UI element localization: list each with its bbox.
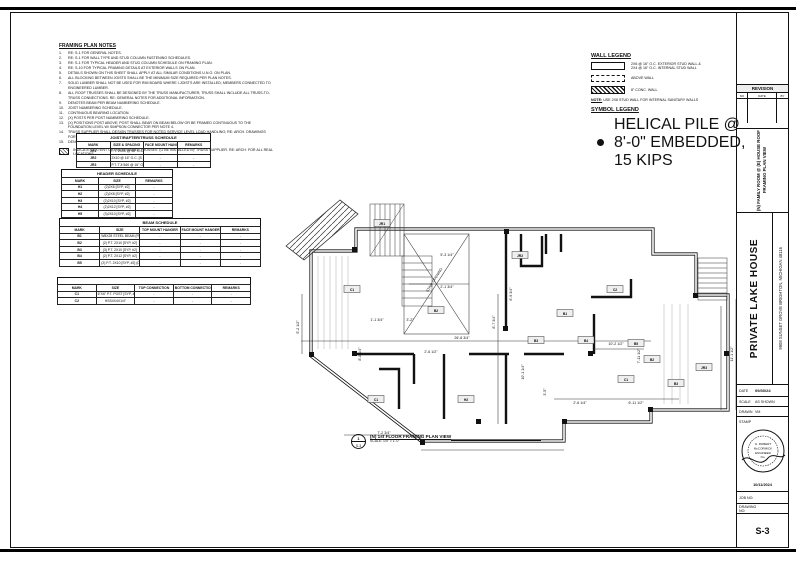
notes-title: FRAMING PLAN NOTES xyxy=(59,43,274,49)
cell: 6"X6" P.T. POST [SYP, #2] xyxy=(96,291,135,298)
job-no-row: JOB NO: xyxy=(737,492,788,504)
drawing-no-label: DRAWING NO: xyxy=(739,505,755,513)
seal-date: 10/11/2024 xyxy=(737,483,788,487)
revision-column-header: DATE xyxy=(748,93,777,98)
column-header: FACE MOUNT HANGER xyxy=(180,227,220,234)
note-number: 11. xyxy=(59,111,68,115)
cell: (3)2X10 [SYP, #2] xyxy=(99,210,136,217)
member-marker: B1 xyxy=(557,310,573,317)
note-number: 7. xyxy=(59,81,68,90)
note-number: 2. xyxy=(59,56,68,60)
dimension-label: 2'-6 1/2" xyxy=(424,350,438,354)
svg-text:C1: C1 xyxy=(374,398,378,402)
note-item: 3.RE: S-1 FOR TYPICAL HEADER AND STUD CO… xyxy=(59,61,274,65)
cell: P.T. 2X10 @ 16" O.C. [SYP, #2] xyxy=(110,148,144,155)
member-marker: B3 xyxy=(528,337,544,344)
column-header: TOP MOUNT HANGER xyxy=(140,227,180,234)
cell: - xyxy=(212,291,251,298)
hatch-swatch-icon xyxy=(59,148,69,155)
note-item: 7.SOLID LUMBER SHALL NOT BE USED FOR RIM… xyxy=(59,81,274,90)
note-text: (X) POSITIONS POST ABOVE; POST SHALL BEA… xyxy=(68,121,274,130)
cell: JR2 xyxy=(77,155,111,162)
note-number: 3. xyxy=(59,61,68,65)
table-row: H1(2)2X6 [SYP, #2]- xyxy=(62,184,173,191)
note-text: DETAILS SHOWN ON THIS SHEET SHALL APPLY … xyxy=(68,71,231,75)
sheet-border: FRAMING PLAN NOTES 1.RE: S-1 FOR GENERAL… xyxy=(10,12,789,548)
note-item: 12.(X) POSTS PER POST NUMBERING SCHEDULE… xyxy=(59,116,274,120)
revision-title: REVISION xyxy=(737,85,788,93)
note-item: 4.RE: S-10 FOR TYPICAL FRAMING DETAILS A… xyxy=(59,66,274,70)
wall-legend-label: 8" CONC. WALL xyxy=(631,88,658,92)
cell: - xyxy=(140,240,180,247)
cell: - xyxy=(220,246,260,253)
cell: H1 xyxy=(62,184,99,191)
member-marker: B4 xyxy=(578,337,594,344)
scale-value: AS SHOWN xyxy=(755,400,775,404)
table-row: B3(3) P.T. 2X10 [SYP, #2]--- xyxy=(60,246,261,253)
dimension-label: 6'-11 1/2" xyxy=(629,401,645,405)
column-schedule-title xyxy=(57,277,251,284)
note-text: RE: S-10 FOR TYPICAL FRAMING DETAILS AT … xyxy=(68,66,195,70)
note-item: 9.DENOTES BEAM PER BEAM NUMBERING SCHEDU… xyxy=(59,101,274,105)
wall-legend-item: 2X6 @ 16" O.C. EXTERIOR STUD WALL & 2X4 … xyxy=(591,62,751,71)
note-item: 11.CONTINUOUS BEARING LOCATION. xyxy=(59,111,274,115)
joist-schedule-title: JOIST/RAFTER/TRUSS SCHEDULE xyxy=(76,133,211,141)
cell: H5 xyxy=(62,210,99,217)
beam-schedule-title: BEAM SCHEDULE xyxy=(59,218,261,226)
dimension-lines xyxy=(301,284,736,450)
member-marker: C1 xyxy=(618,376,634,383)
note-number: 12. xyxy=(59,116,68,120)
cell: - xyxy=(140,246,180,253)
dimension-label: 26'-8 3/4" xyxy=(454,336,470,340)
date-row: DATE 09/30/24 xyxy=(737,385,788,397)
plan-caption: 1 S-3 (N) 1st FLOOR FRAMING PLAN VIEW SC… xyxy=(351,434,541,449)
member-marker: JR1 xyxy=(374,220,390,227)
note-text: DENOTES BEAM PER BEAM NUMBERING SCHEDULE… xyxy=(68,101,161,105)
svg-text:B5: B5 xyxy=(634,342,638,346)
cell: (2)2X12 [SYP, #2] xyxy=(99,204,136,211)
dimension-label: 3'-5" xyxy=(543,388,547,396)
note-number: 1. xyxy=(59,51,68,55)
seal-text-line: G. ROBERT xyxy=(754,442,771,446)
date-value: 09/30/24 xyxy=(755,388,771,393)
note-item: 2.RE: S-1 FOR WALL TYPE AND STUD COLUMN … xyxy=(59,56,274,60)
drawn-label: DRAWN xyxy=(739,410,755,414)
note-text: RE: S-1 FOR WALL TYPE AND STUD COLUMN FA… xyxy=(68,56,191,60)
caption-text: (N) 1st FLOOR FRAMING PLAN VIEW SCALE: 1… xyxy=(370,434,451,443)
column-header: MARK xyxy=(60,227,100,234)
svg-text:JR2: JR2 xyxy=(517,254,523,258)
header-schedule-title: HEADER SCHEDULE xyxy=(61,169,173,177)
joist-schedule-table: MARKSIZE & SPACINGFACE MOUNT HANGERREMAR… xyxy=(76,141,211,168)
cell: - xyxy=(180,240,220,247)
revision-column-header: BY xyxy=(777,93,788,98)
column-header: REMARKS xyxy=(177,142,211,149)
dimension-label: 6'-9 3/4" xyxy=(509,287,513,301)
table-row: C16"X6" P.T. POST [SYP, #2]--- xyxy=(58,291,251,298)
cell: B3 xyxy=(60,246,100,253)
cell: (2)2X8 [SYP, #2] xyxy=(99,191,136,198)
symbol-legend-item: HELICAL PILE @ 8'-0" EMBEDDED, 15 KIPS xyxy=(591,116,751,170)
cell: - xyxy=(144,155,178,162)
column-schedule: MARKSIZETOP CONNECTIONBOTTOM CONNECTIONR… xyxy=(57,277,251,305)
revision-rows xyxy=(737,99,788,123)
note-text: CONTINUOUS BEARING LOCATION. xyxy=(68,111,129,115)
table-row: H3(2)2X10 [SYP, #2]- xyxy=(62,197,173,204)
member-marker: JR2 xyxy=(512,252,528,259)
cell: - xyxy=(173,298,212,305)
table-row: B1W8X28 STEEL BEAM (FLUSH)--- xyxy=(60,233,261,240)
wall-legend-label: 2X6 @ 16" O.C. EXTERIOR STUD WALL & 2X4 … xyxy=(631,62,701,71)
floor-framing-plan: STAIR OPENING xyxy=(284,194,744,454)
note-number: 14. xyxy=(59,130,68,139)
column-header: REMARKS xyxy=(212,285,251,292)
cell: H2 xyxy=(62,191,99,198)
table-row: H2(2)2X8 [SYP, #2]- xyxy=(62,191,173,198)
wall-legend-item: 8" CONC. WALL xyxy=(591,86,751,94)
bubble-number: 1 xyxy=(352,436,365,441)
cell: (2)2X10 [SYP, #2] xyxy=(99,197,136,204)
project-address: 9908 SUNSET GROVE BRIGHTON, MICHIGAN 481… xyxy=(778,247,783,350)
cell: JR1 xyxy=(77,148,111,155)
cell: - xyxy=(140,259,180,266)
svg-text:C2: C2 xyxy=(613,288,617,292)
table-row: B2(2) P.T. 2X10 [SYP, #2]--- xyxy=(60,240,261,247)
cell: - xyxy=(180,253,220,260)
note-text: JOIST NUMBERING SCHEDULE. xyxy=(68,106,123,110)
title-block-blank xyxy=(737,13,788,85)
cell: - xyxy=(180,233,220,240)
svg-text:B4: B4 xyxy=(584,339,588,343)
engineer-seal: G. ROBERTMcCORMICKENGINEERNo. 10/11/2024 xyxy=(737,426,788,492)
cell: - xyxy=(173,291,212,298)
cell: JR3 xyxy=(77,161,111,168)
column-header: SIZE & SPACING xyxy=(110,142,144,149)
dimension-label: 11'-1 1/2" xyxy=(730,346,734,362)
scale-label: SCALE xyxy=(739,400,755,404)
note-number: 15. xyxy=(59,140,68,144)
cell: - xyxy=(135,298,174,305)
filled-circle-icon xyxy=(597,139,604,146)
cell: - xyxy=(220,233,260,240)
symbol-legend-label: HELICAL PILE @ 8'-0" EMBEDDED, 15 KIPS xyxy=(614,116,751,170)
svg-text:C1: C1 xyxy=(350,288,354,292)
post-markers xyxy=(309,229,729,445)
cell: - xyxy=(177,161,211,168)
seal-text-line: No. xyxy=(760,455,765,459)
cell: B4 xyxy=(60,253,100,260)
dashed-wall-swatch-icon xyxy=(591,75,625,82)
cell: - xyxy=(136,191,173,198)
table-row: H4(2)2X12 [SYP, #2]- xyxy=(62,204,173,211)
wall-legend-title: WALL LEGEND xyxy=(591,53,751,59)
job-no-label: JOB NO: xyxy=(739,496,755,500)
note-text: (X) POSTS PER POST NUMBERING SCHEDULE. xyxy=(68,116,150,120)
beam-schedule-table: MARKSIZETOP MOUNT HANGERFACE MOUNT HANGE… xyxy=(59,226,261,267)
column-header: MARK xyxy=(62,178,99,185)
note-text: RE: S-1 FOR GENERAL NOTES. xyxy=(68,51,122,55)
cell: (3) P.T. 2X10 [SYP, #2] xyxy=(100,246,140,253)
cell: - xyxy=(136,184,173,191)
dimension-label: 1'-1 3/4" xyxy=(370,318,384,322)
dimension-label: 8'-7 3/4" xyxy=(492,315,496,329)
cell: - xyxy=(140,253,180,260)
scale-row: SCALE AS SHOWN xyxy=(737,397,788,407)
seal-text-line: ENGINEER xyxy=(755,451,772,455)
note-item: 8.ALL ROOF TRUSSES SHALL BE DESIGNED BY … xyxy=(59,91,274,100)
cell: - xyxy=(180,259,220,266)
note-number: 9. xyxy=(59,101,68,105)
wall-legend-note: NOTE: USE 2X6 STUD WALL FOR INTERNAL SAN… xyxy=(591,98,751,102)
symbol-legend-items: HELICAL PILE @ 8'-0" EMBEDDED, 15 KIPS xyxy=(591,116,751,170)
cell: - xyxy=(177,155,211,162)
column-header: FACE MOUNT HANGER xyxy=(144,142,178,149)
beam-schedule: BEAM SCHEDULEMARKSIZETOP MOUNT HANGERFAC… xyxy=(59,218,261,267)
note-text: ALL ROOF TRUSSES SHALL BE DESIGNED BY TH… xyxy=(68,91,274,100)
svg-text:B2: B2 xyxy=(650,358,654,362)
cell: B5 xyxy=(60,259,100,266)
caption-rule xyxy=(451,440,541,441)
note-text: RE: S-1 FOR TYPICAL HEADER AND STUD COLU… xyxy=(68,61,213,65)
seal-icon: G. ROBERTMcCORMICKENGINEERNo. xyxy=(738,426,788,480)
member-marker: B5 xyxy=(628,340,644,347)
svg-text:B1: B1 xyxy=(563,312,567,316)
drawing-no-row: DRAWING NO: xyxy=(737,504,788,514)
note-number: 10. xyxy=(59,106,68,110)
table-row: B5(2) P.T. 2X10 [SYP, #2] (DROPPED)--- xyxy=(60,259,261,266)
table-row: C2HSS4X4X1/4"--- xyxy=(58,298,251,305)
cell: - xyxy=(177,148,211,155)
drawn-value: VM xyxy=(755,410,760,414)
drawing-sheet-page: FRAMING PLAN NOTES 1.RE: S-1 FOR GENERAL… xyxy=(0,0,796,562)
svg-text:B2: B2 xyxy=(434,309,438,313)
note-number: 8. xyxy=(59,91,68,100)
column-header: BOTTOM CONNECTION xyxy=(173,285,212,292)
cell: - xyxy=(140,233,180,240)
dimension-label: 2'-6 1/4" xyxy=(573,401,587,405)
svg-text:B3: B3 xyxy=(534,339,538,343)
cell: (2) P.T. 2X10 [SYP, #2] xyxy=(100,240,140,247)
top-border-bar xyxy=(0,7,796,10)
detail-bubble-icon: 1 S-3 xyxy=(351,434,366,449)
caption-scale: SCALE: 1/4" = 1'-0" xyxy=(370,439,451,443)
cell: - xyxy=(144,161,178,168)
table-row: JR3P.T. TJI 560 @ 16" O.C. [SYP, #2]-- xyxy=(77,161,211,168)
symbol-legend-title: SYMBOL LEGEND xyxy=(591,107,751,113)
cell: B1 xyxy=(60,233,100,240)
member-marker: C1 xyxy=(368,396,384,403)
cell: (2) P.T. 2X10 [SYP, #2] (DROPPED) xyxy=(100,259,140,266)
note-item: 1.RE: S-1 FOR GENERAL NOTES. xyxy=(59,51,274,55)
member-marker: C2 xyxy=(607,286,623,293)
svg-text:JR3: JR3 xyxy=(701,366,707,370)
cell: - xyxy=(135,291,174,298)
note-number: 6. xyxy=(59,76,68,80)
cell: H3 xyxy=(62,197,99,204)
svg-text:B3: B3 xyxy=(674,382,678,386)
cell: - xyxy=(180,246,220,253)
column-header: SIZE xyxy=(99,178,136,185)
note-item: 5.DETAILS SHOWN ON THIS SHEET SHALL APPL… xyxy=(59,71,274,75)
table-row: JR22X10 @ 16" O.C. [S.P.F., #2]-- xyxy=(77,155,211,162)
table-row: JR1P.T. 2X10 @ 16" O.C. [SYP, #2]-- xyxy=(77,148,211,155)
table-row: H5(3)2X10 [SYP, #2]- xyxy=(62,210,173,217)
dimension-label: 8'-8 1/4" xyxy=(358,347,362,361)
cell: (2) P.T. 2X12 [SYP, #2] xyxy=(100,253,140,260)
member-marker: JR3 xyxy=(696,364,712,371)
dimension-label: 5'-2 1/2" xyxy=(296,320,300,334)
column-header: TOP CONNECTION xyxy=(135,285,174,292)
note-number: 5. xyxy=(59,71,68,75)
wall-legend-label: ABOVE WALL xyxy=(631,76,654,80)
column-header: MARK xyxy=(77,142,111,149)
cell: - xyxy=(220,253,260,260)
hatched-wall-swatch-icon xyxy=(591,86,625,94)
legend-panel: WALL LEGEND 2X6 @ 16" O.C. EXTERIOR STUD… xyxy=(591,53,751,170)
sheet-number: S-3 xyxy=(755,526,769,536)
column-header: REMARKS xyxy=(220,227,260,234)
cell: - xyxy=(212,298,251,305)
cell: - xyxy=(220,240,260,247)
note-item: 10.JOIST NUMBERING SCHEDULE. xyxy=(59,106,274,110)
seal-text-line: McCORMICK xyxy=(753,446,771,450)
exterior-walls xyxy=(311,229,728,441)
date-label: DATE xyxy=(739,389,755,393)
column-header: REMARKS xyxy=(136,178,173,185)
sheet-title-box: (N) FAMILY ROOM @ (E) HOUSE ROOF FRAMING… xyxy=(737,129,788,213)
cell: - xyxy=(136,210,173,217)
svg-text:C1: C1 xyxy=(624,378,628,382)
svg-text:H2: H2 xyxy=(464,398,468,402)
title-block: REVISION NODATEBY (N) FAMILY ROOM @ (E) … xyxy=(736,13,788,547)
sheet-title: (N) FAMILY ROOM @ (E) HOUSE ROOF FRAMING… xyxy=(756,130,768,211)
cell: H4 xyxy=(62,204,99,211)
stamp-label: STAMP xyxy=(737,417,788,426)
bubble-sheet: S-3 xyxy=(352,444,365,448)
column-header: MARK xyxy=(58,285,97,292)
note-label: NOTE: xyxy=(591,98,602,102)
note-item: 13.(X) POSITIONS POST ABOVE; POST SHALL … xyxy=(59,121,274,130)
member-marker: B2 xyxy=(428,307,444,314)
cell: C1 xyxy=(58,291,97,298)
cell: W8X28 STEEL BEAM (FLUSH) xyxy=(100,233,140,240)
cell: (2)2X6 [SYP, #2] xyxy=(99,184,136,191)
stair-treads xyxy=(402,256,432,306)
revision-column-header: NO xyxy=(737,93,748,98)
column-header: SIZE xyxy=(96,285,135,292)
dimension-label: 10'-2 1/2" xyxy=(608,342,624,346)
cell: - xyxy=(136,197,173,204)
dimension-label: 5'-3 1/4" xyxy=(440,253,454,257)
dimension-label: 7'-11 1/2" xyxy=(637,348,641,364)
note-number: 4. xyxy=(59,66,68,70)
note-number: 13. xyxy=(59,121,68,130)
svg-text:JR1: JR1 xyxy=(379,222,385,226)
joist-schedule: JOIST/RAFTER/TRUSS SCHEDULEMARKSIZE & SP… xyxy=(76,133,211,168)
project-name: PRIVATE LAKE HOUSE xyxy=(749,239,760,358)
member-marker: C1 xyxy=(344,286,360,293)
cell: HSS4X4X1/4" xyxy=(96,298,135,305)
dimension-label: 3'-2" xyxy=(406,318,414,322)
wall-legend-item: ABOVE WALL xyxy=(591,75,751,82)
member-marker: B3 xyxy=(668,380,684,387)
dimension-label: 10'-1 1/4" xyxy=(521,364,525,380)
sheet-number-box: S-3 xyxy=(737,514,788,547)
member-marker: B2 xyxy=(644,356,660,363)
notes-list: 1.RE: S-1 FOR GENERAL NOTES.2.RE: S-1 FO… xyxy=(59,51,274,145)
cell: C2 xyxy=(58,298,97,305)
cell: 2X10 @ 16" O.C. [S.P.F., #2] xyxy=(110,155,144,162)
solid-wall-swatch-icon xyxy=(591,62,625,70)
table-row: B4(2) P.T. 2X12 [SYP, #2]--- xyxy=(60,253,261,260)
dimension-label: 2'-1 3/4" xyxy=(440,285,454,289)
drawn-row: DRAWN VM xyxy=(737,407,788,417)
cell: - xyxy=(144,148,178,155)
cell: P.T. TJI 560 @ 16" O.C. [SYP, #2] xyxy=(110,161,144,168)
note-item: 6.ALL BLOCKING BETWEEN JOISTS SHALL BE T… xyxy=(59,76,274,80)
column-header: SIZE xyxy=(100,227,140,234)
note-text: USE 2X6 STUD WALL FOR INTERNAL SANITARY … xyxy=(603,98,698,102)
wall-legend-items: 2X6 @ 16" O.C. EXTERIOR STUD WALL & 2X4 … xyxy=(591,62,751,94)
cell: B2 xyxy=(60,240,100,247)
note-text: ALL BLOCKING BETWEEN JOISTS SHALL BE THE… xyxy=(68,76,232,80)
bottom-border-bar xyxy=(0,549,796,552)
project-box: PRIVATE LAKE HOUSE 9908 SUNSET GROVE BRI… xyxy=(737,213,788,385)
column-schedule-table: MARKSIZETOP CONNECTIONBOTTOM CONNECTIONR… xyxy=(57,284,251,305)
cell: - xyxy=(220,259,260,266)
member-marker: H2 xyxy=(458,396,474,403)
note-text: SOLID LUMBER SHALL NOT BE USED FOR RIM B… xyxy=(68,81,274,90)
dimension-labels: 26'-8 3/4"10'-2 1/2"7'-11 1/2"11'-1 1/2"… xyxy=(296,253,734,435)
revision-block: REVISION NODATEBY xyxy=(737,85,788,129)
cell: - xyxy=(136,204,173,211)
